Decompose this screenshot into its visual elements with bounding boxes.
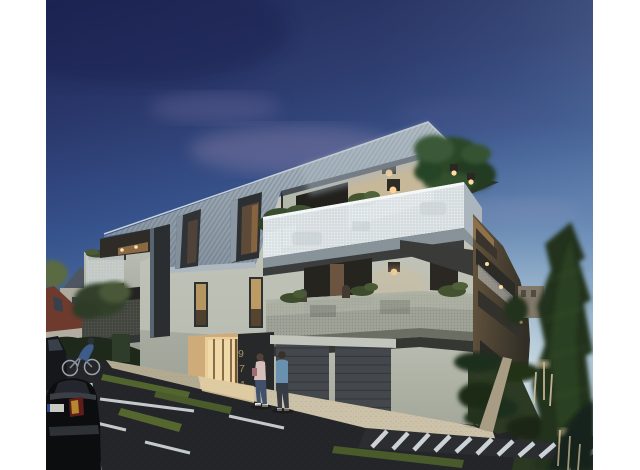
svg-text:9: 9 (238, 348, 244, 360)
svg-text:7: 7 (239, 363, 245, 375)
